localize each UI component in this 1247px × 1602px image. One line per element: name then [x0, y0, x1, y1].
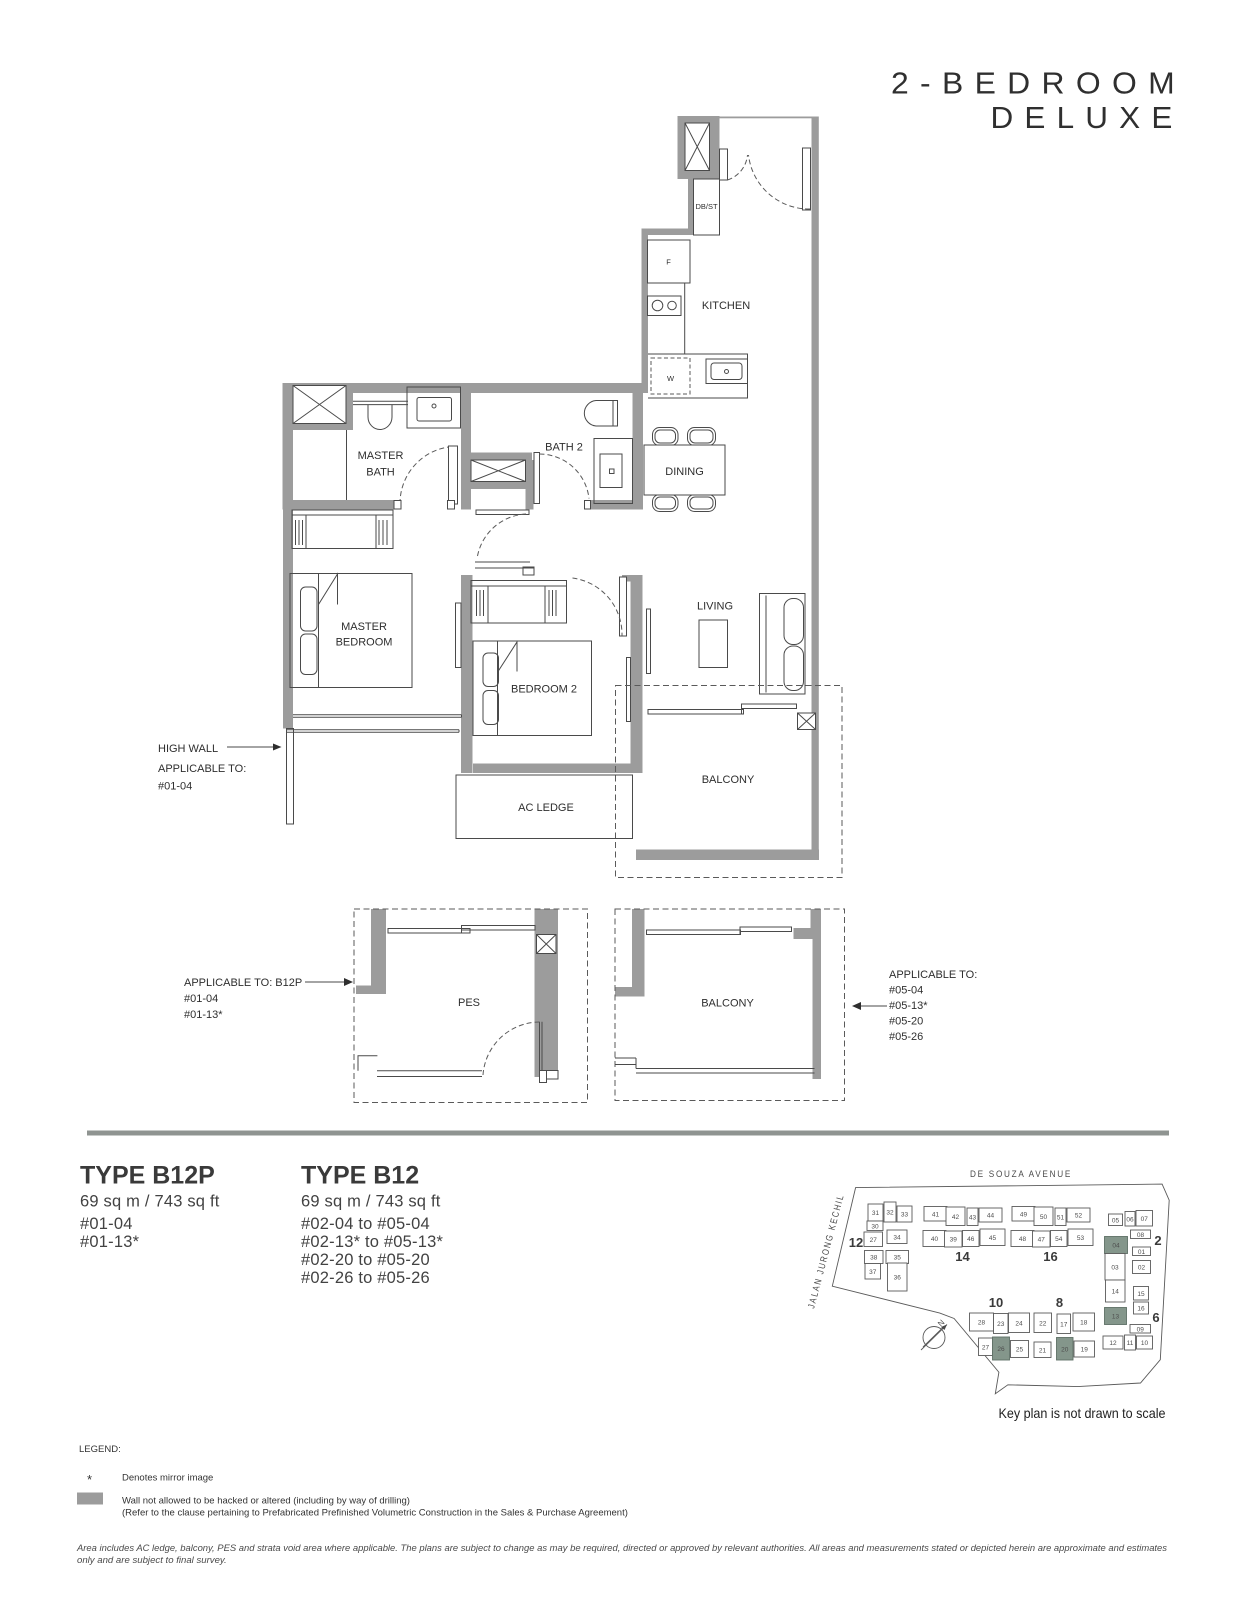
svg-text:44: 44 — [987, 1213, 995, 1220]
svg-text:43: 43 — [969, 1214, 977, 1221]
svg-text:54: 54 — [1055, 1236, 1063, 1243]
svg-text:20: 20 — [1061, 1346, 1069, 1353]
svg-text:10: 10 — [989, 1295, 1003, 1310]
svg-text:#02-26 to #05-26: #02-26 to #05-26 — [301, 1269, 430, 1287]
svg-text:#05-20: #05-20 — [889, 1016, 923, 1028]
svg-text:DINING: DINING — [665, 466, 704, 478]
svg-text:41: 41 — [932, 1211, 940, 1218]
svg-text:Area includes AC ledge, balcon: Area includes AC ledge, balcony, PES and… — [76, 1543, 1167, 1554]
svg-text:(Refer to the clause pertainin: (Refer to the clause pertaining to Prefa… — [122, 1508, 628, 1519]
svg-text:BEDROOM 2: BEDROOM 2 — [511, 684, 577, 696]
svg-text:06: 06 — [1126, 1216, 1134, 1223]
svg-text:Denotes mirror image: Denotes mirror image — [122, 1473, 213, 1484]
svg-text:#05-13*: #05-13* — [889, 1000, 928, 1012]
svg-text:LEGEND:: LEGEND: — [79, 1444, 121, 1455]
svg-text:only and are subject to final: only and are subject to final survey. — [77, 1555, 227, 1566]
svg-text:HIGH WALL: HIGH WALL — [158, 743, 218, 755]
svg-text:16: 16 — [1043, 1249, 1057, 1264]
svg-text:BEDROOM: BEDROOM — [336, 637, 393, 649]
svg-text:DE SOUZA AVENUE: DE SOUZA AVENUE — [970, 1169, 1072, 1180]
svg-text:BATH: BATH — [366, 467, 395, 479]
svg-text:AC LEDGE: AC LEDGE — [518, 802, 574, 814]
svg-text:04: 04 — [1112, 1243, 1120, 1250]
svg-text:Wall not allowed to be hacked: Wall not allowed to be hacked or altered… — [122, 1496, 410, 1507]
svg-text:47: 47 — [1038, 1237, 1046, 1244]
svg-text:8: 8 — [1056, 1295, 1063, 1310]
svg-text:30: 30 — [871, 1223, 879, 1230]
svg-text:26: 26 — [997, 1346, 1005, 1353]
svg-text:38: 38 — [870, 1255, 878, 1262]
svg-text:24: 24 — [1015, 1320, 1023, 1327]
svg-text:#01-13*: #01-13* — [80, 1233, 140, 1251]
svg-text:KITCHEN: KITCHEN — [702, 300, 750, 312]
svg-text:07: 07 — [1141, 1216, 1149, 1223]
svg-text:34: 34 — [893, 1234, 901, 1241]
svg-text:39: 39 — [950, 1237, 958, 1244]
svg-text:35: 35 — [894, 1255, 902, 1262]
svg-text:28: 28 — [978, 1320, 986, 1327]
svg-text:BALCONY: BALCONY — [702, 774, 755, 786]
svg-text:#05-26: #05-26 — [889, 1031, 923, 1043]
svg-text:10: 10 — [1141, 1340, 1149, 1347]
svg-text:21: 21 — [1039, 1347, 1047, 1354]
svg-text:46: 46 — [967, 1236, 975, 1243]
svg-text:15: 15 — [1137, 1291, 1145, 1298]
svg-text:27: 27 — [870, 1237, 878, 1244]
svg-text:14: 14 — [1112, 1289, 1120, 1296]
svg-text:*: * — [87, 1472, 92, 1487]
svg-text:6: 6 — [1152, 1310, 1159, 1325]
svg-text:#02-04 to #05-04: #02-04 to #05-04 — [301, 1215, 430, 1233]
svg-text:50: 50 — [1040, 1214, 1048, 1221]
svg-text:BATH 2: BATH 2 — [545, 442, 583, 454]
svg-text:03: 03 — [1111, 1264, 1119, 1271]
svg-text:31: 31 — [872, 1210, 880, 1217]
svg-text:11: 11 — [1127, 1340, 1134, 1347]
svg-text:TYPE B12P: TYPE B12P — [80, 1162, 215, 1190]
svg-text:APPLICABLE TO:: APPLICABLE TO: — [889, 969, 977, 981]
svg-text:#01-04: #01-04 — [80, 1215, 133, 1233]
svg-text:17: 17 — [1060, 1321, 1068, 1328]
svg-text:#02-20 to #05-20: #02-20 to #05-20 — [301, 1251, 430, 1269]
svg-text:27: 27 — [982, 1344, 990, 1351]
svg-text:PES: PES — [458, 997, 480, 1009]
svg-text:33: 33 — [901, 1212, 909, 1219]
svg-text:2-BEDROOM: 2-BEDROOM — [891, 66, 1186, 101]
svg-text:2: 2 — [1154, 1233, 1161, 1248]
svg-text:16: 16 — [1137, 1306, 1145, 1313]
svg-text:19: 19 — [1081, 1347, 1089, 1354]
svg-text:TYPE B12: TYPE B12 — [301, 1162, 419, 1190]
svg-text:05: 05 — [1112, 1217, 1120, 1224]
svg-text:08: 08 — [1137, 1232, 1145, 1239]
svg-text:14: 14 — [955, 1249, 970, 1264]
svg-text:49: 49 — [1020, 1211, 1028, 1218]
svg-text:23: 23 — [997, 1321, 1005, 1328]
svg-text:W: W — [667, 374, 675, 383]
svg-text:APPLICABLE TO:: APPLICABLE TO: — [158, 763, 246, 775]
svg-text:32: 32 — [886, 1210, 894, 1217]
svg-text:MASTER: MASTER — [358, 450, 404, 462]
svg-text:APPLICABLE TO: B12P: APPLICABLE TO: B12P — [184, 977, 302, 989]
svg-text:#05-04: #05-04 — [889, 985, 923, 997]
svg-text:LIVING: LIVING — [697, 601, 733, 613]
svg-text:01: 01 — [1138, 1249, 1146, 1256]
svg-text:02: 02 — [1138, 1265, 1146, 1272]
svg-text:#01-13*: #01-13* — [184, 1009, 223, 1021]
svg-text:Key plan is not drawn to scale: Key plan is not drawn to scale — [999, 1405, 1166, 1421]
svg-text:#02-13* to #05-13*: #02-13* to #05-13* — [301, 1233, 444, 1251]
svg-text:40: 40 — [931, 1236, 939, 1243]
svg-text:37: 37 — [869, 1269, 877, 1276]
svg-text:MASTER: MASTER — [341, 621, 387, 633]
svg-text:36: 36 — [894, 1275, 902, 1282]
svg-text:F: F — [666, 258, 671, 267]
svg-text:42: 42 — [952, 1214, 960, 1221]
svg-text:69 sq m / 743 sq ft: 69 sq m / 743 sq ft — [301, 1193, 441, 1211]
svg-text:12: 12 — [1109, 1340, 1117, 1347]
svg-text:18: 18 — [1080, 1320, 1088, 1327]
svg-text:25: 25 — [1016, 1347, 1024, 1354]
svg-text:DELUXE: DELUXE — [991, 100, 1184, 135]
svg-text:#01-04: #01-04 — [184, 993, 218, 1005]
svg-text:52: 52 — [1075, 1213, 1083, 1220]
svg-text:BALCONY: BALCONY — [701, 998, 754, 1010]
svg-text:53: 53 — [1077, 1235, 1085, 1242]
svg-text:09: 09 — [1137, 1326, 1145, 1333]
svg-text:69 sq m / 743 sq ft: 69 sq m / 743 sq ft — [80, 1193, 220, 1211]
svg-text:22: 22 — [1039, 1320, 1047, 1327]
svg-text:51: 51 — [1057, 1214, 1065, 1221]
svg-text:12: 12 — [849, 1235, 863, 1250]
svg-text:13: 13 — [1112, 1314, 1120, 1321]
svg-text:48: 48 — [1019, 1236, 1027, 1243]
svg-text:45: 45 — [989, 1235, 997, 1242]
svg-text:#01-04: #01-04 — [158, 781, 192, 793]
svg-text:DB/ST: DB/ST — [695, 202, 718, 211]
